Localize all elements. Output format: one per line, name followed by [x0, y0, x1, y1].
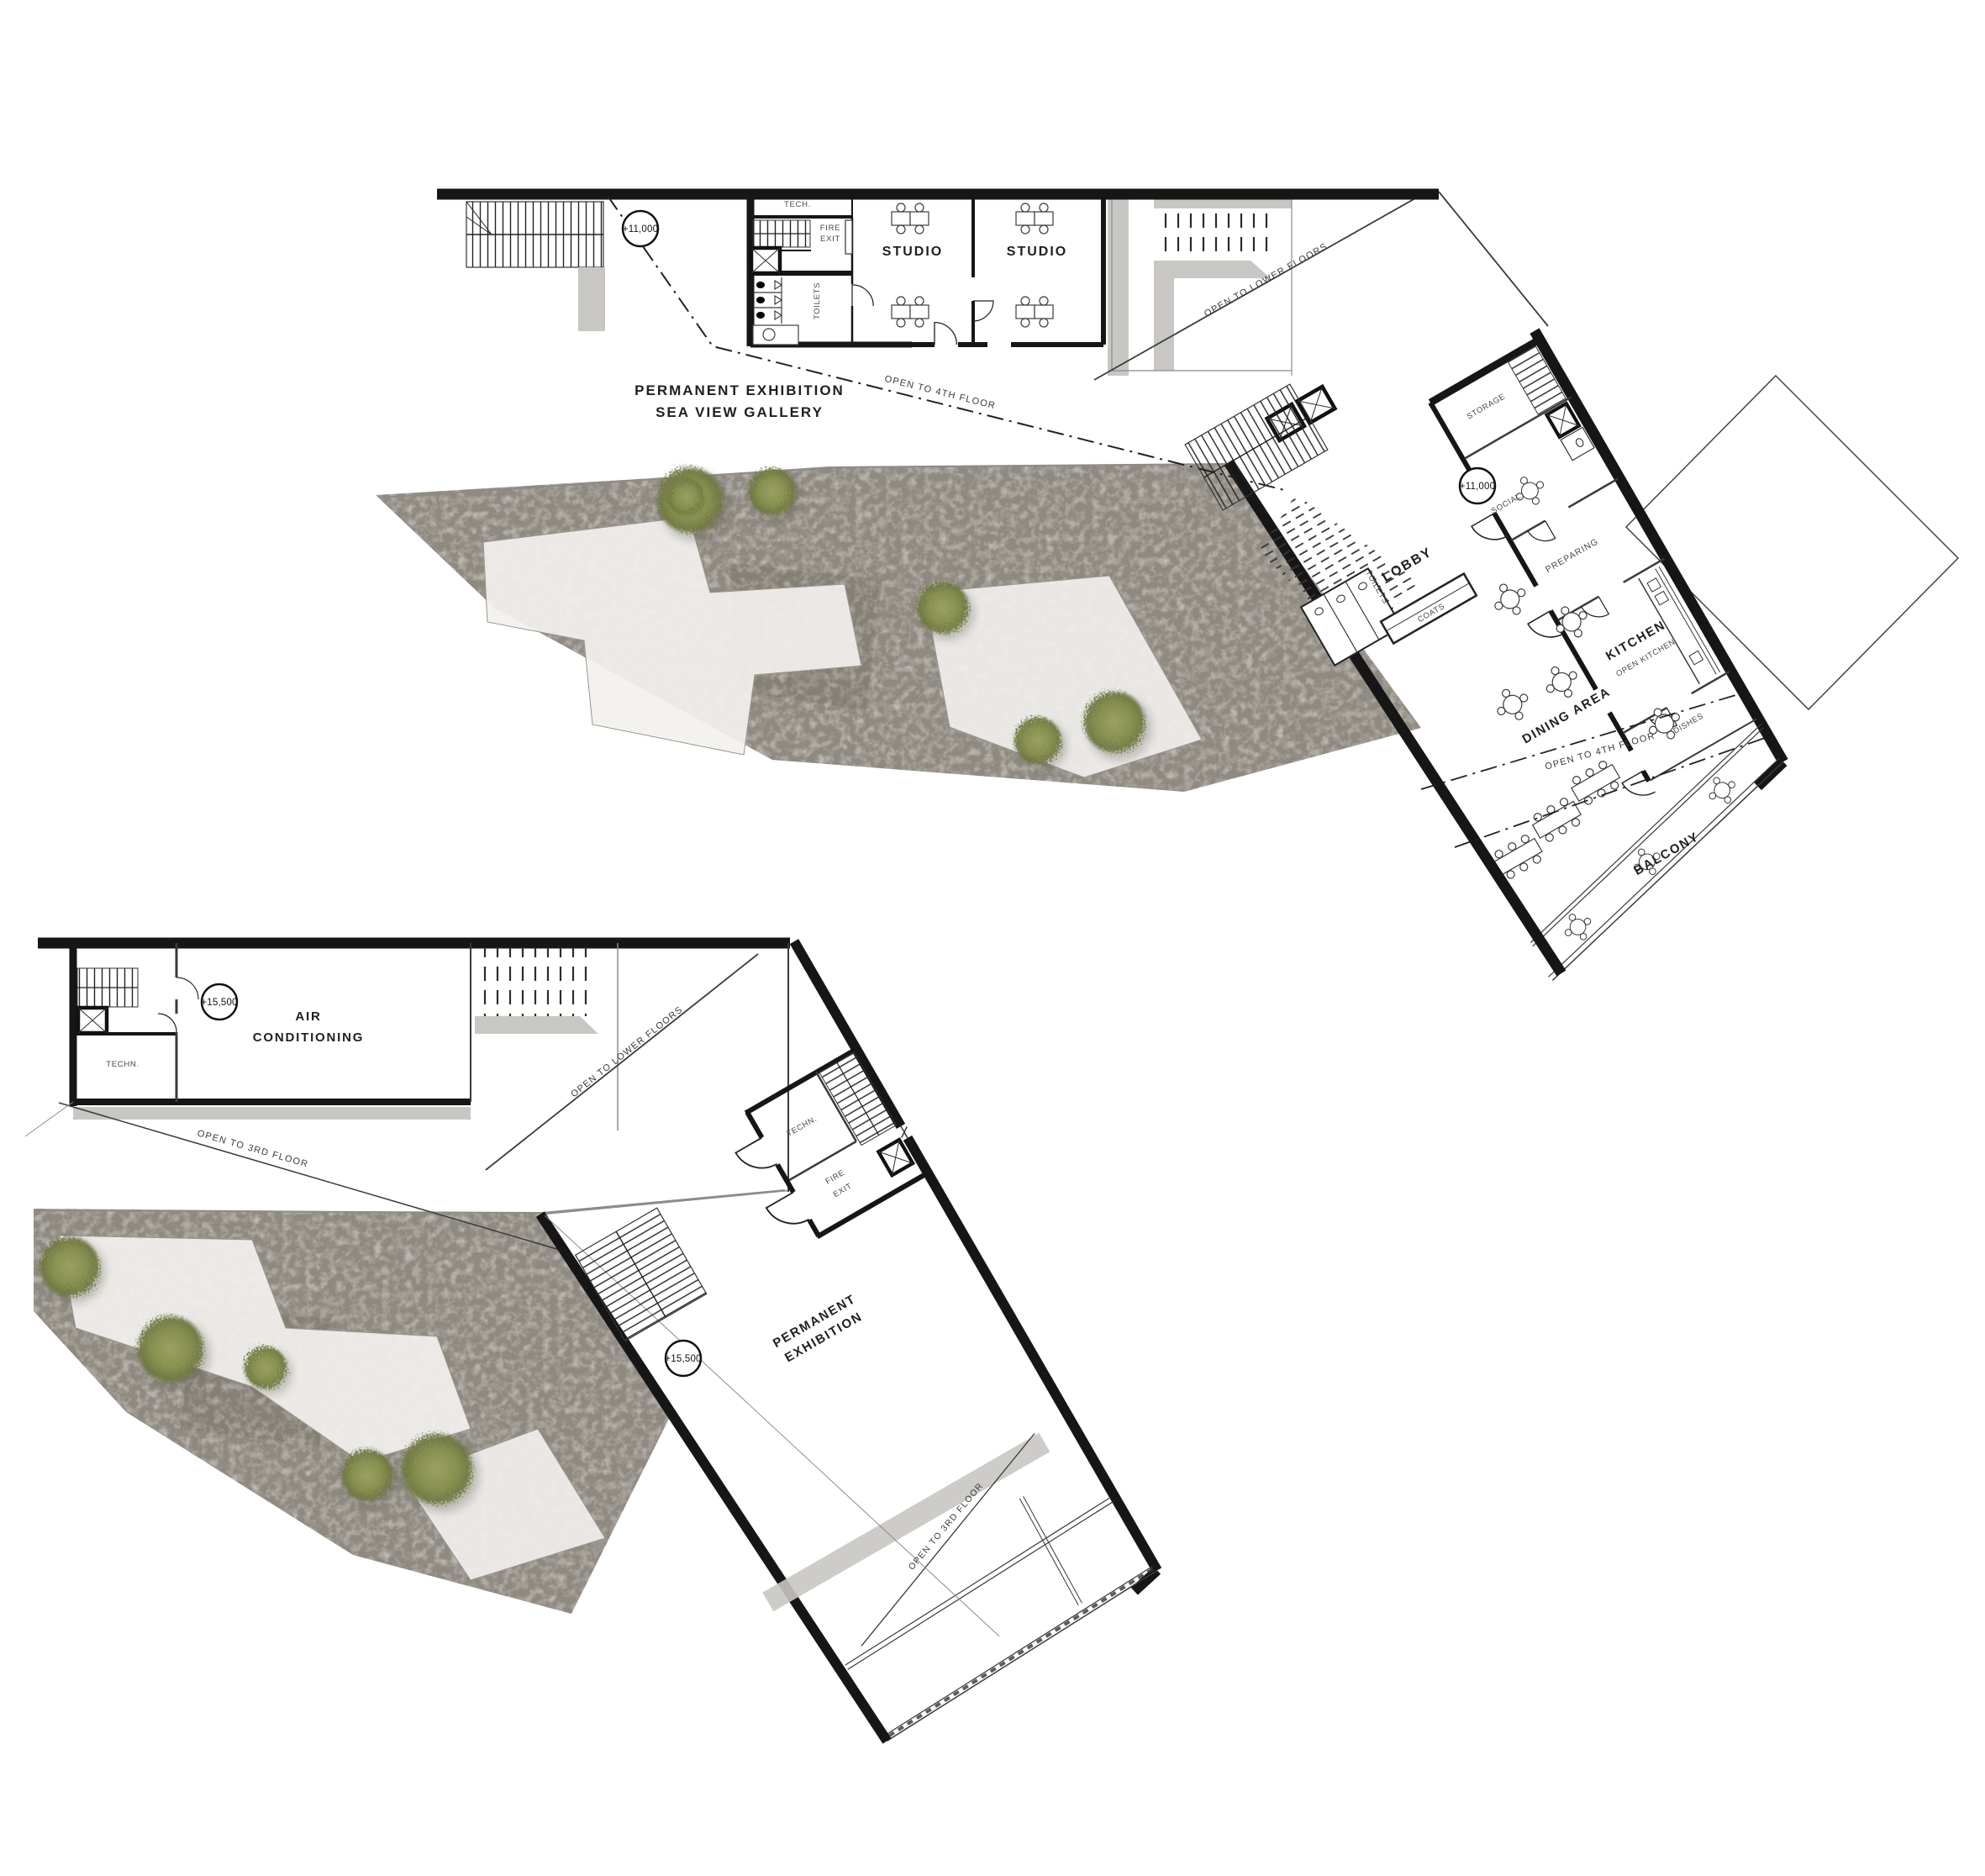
- open-void-hatch: [475, 947, 597, 1016]
- label-air-line1: AIR: [295, 1009, 321, 1024]
- open-void-hatch: [1156, 210, 1269, 259]
- lower-plan: +15,500 TECHN. AIR CONDITIONING OPEN TO …: [25, 939, 1169, 1760]
- level-marker-11000-b: +11,000: [1460, 468, 1495, 503]
- label-gallery-line1: PERMANENT EXHIBITION: [634, 382, 845, 398]
- floor-plan-sheet: +11,000: [0, 0, 1985, 1876]
- label-studio-1: STUDIO: [882, 245, 943, 259]
- label-fire-exit-line2: EXIT: [820, 234, 840, 244]
- label-air-line2: CONDITIONING: [253, 1030, 364, 1045]
- upper-plan: +11,000: [376, 189, 1958, 982]
- label-tech: TECH.: [784, 200, 811, 209]
- level-marker-11000-a: +11,000: [623, 211, 658, 246]
- label-techn-west: TECHN.: [106, 1060, 140, 1069]
- label-toilets-west: TOILETS: [813, 282, 822, 319]
- elevator: [751, 248, 780, 273]
- level-text: +15,500: [201, 998, 237, 1008]
- elevator: [78, 1008, 107, 1033]
- level-text: +11,000: [623, 224, 658, 234]
- level-text: +11,000: [1460, 482, 1495, 492]
- label-fire-exit-line1: FIRE: [820, 224, 840, 233]
- ac-stair: [77, 968, 138, 1007]
- level-marker-15500-a: +15,500: [201, 984, 237, 1020]
- level-text: +15,500: [665, 1354, 701, 1364]
- floor-plan-drawing: +11,000: [0, 0, 1985, 1876]
- level-marker-15500-b: +15,500: [665, 1341, 701, 1376]
- label-gallery-line2: SEA VIEW GALLERY: [656, 404, 824, 420]
- label-studio-2: STUDIO: [1007, 245, 1067, 259]
